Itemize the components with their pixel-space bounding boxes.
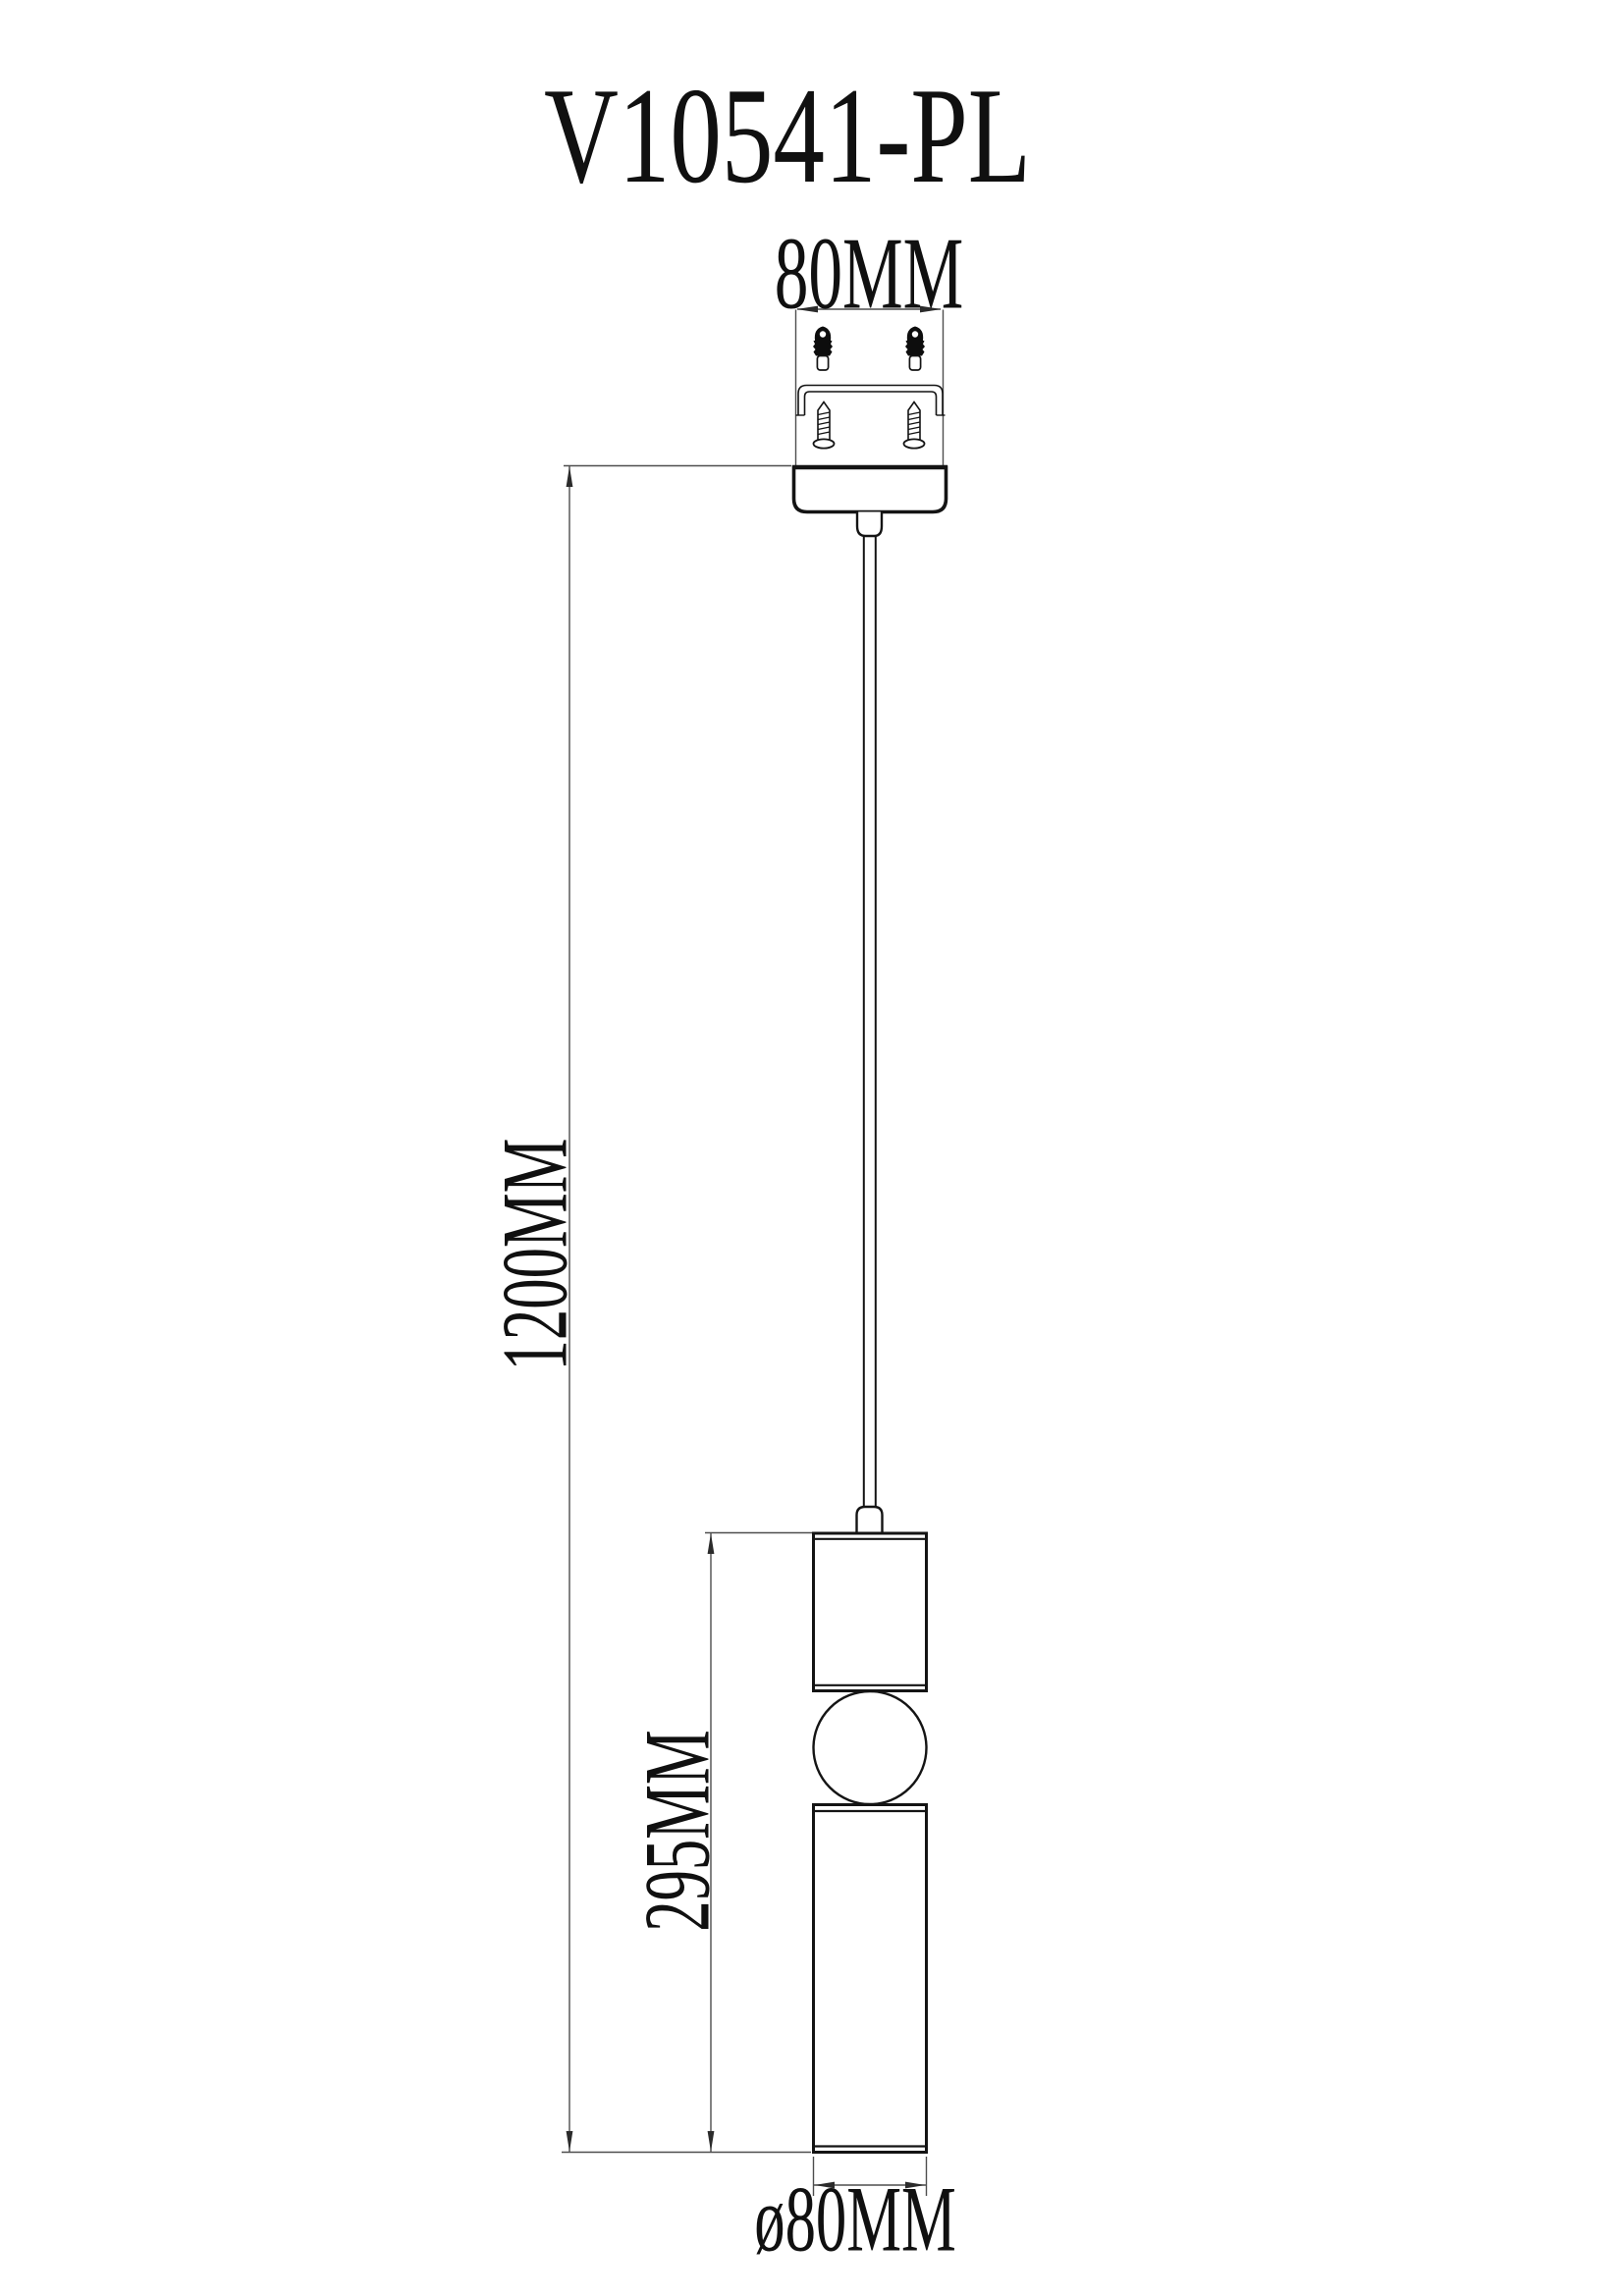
pendant-lamp-diagram (0, 0, 1623, 2296)
ceiling-canopy (792, 467, 947, 512)
suspension-cable (864, 536, 876, 1508)
wall-anchor-left (813, 327, 833, 371)
drawing-title: V10541-PL (544, 68, 1031, 205)
cable-gland-bottom (857, 1507, 883, 1534)
suspension-length-label: 1200MM (489, 1139, 582, 1371)
lamp-center-sphere (814, 1691, 927, 1804)
fixture-diameter-label: ø80MM (754, 2173, 956, 2267)
lamp-upper-cylinder (814, 1533, 927, 1691)
cable-gland-top (857, 512, 882, 537)
technical-drawing-page: V10541-PL 80MM 1200MM 295MM ø80MM (0, 0, 1623, 2296)
wall-anchor-right (905, 327, 925, 371)
screw-right (904, 402, 925, 449)
fixture-height-label: 295MM (631, 1730, 725, 1932)
screw-left (814, 402, 835, 449)
canopy-width-label: 80MM (775, 222, 964, 325)
lamp-lower-cylinder (814, 1805, 927, 2153)
